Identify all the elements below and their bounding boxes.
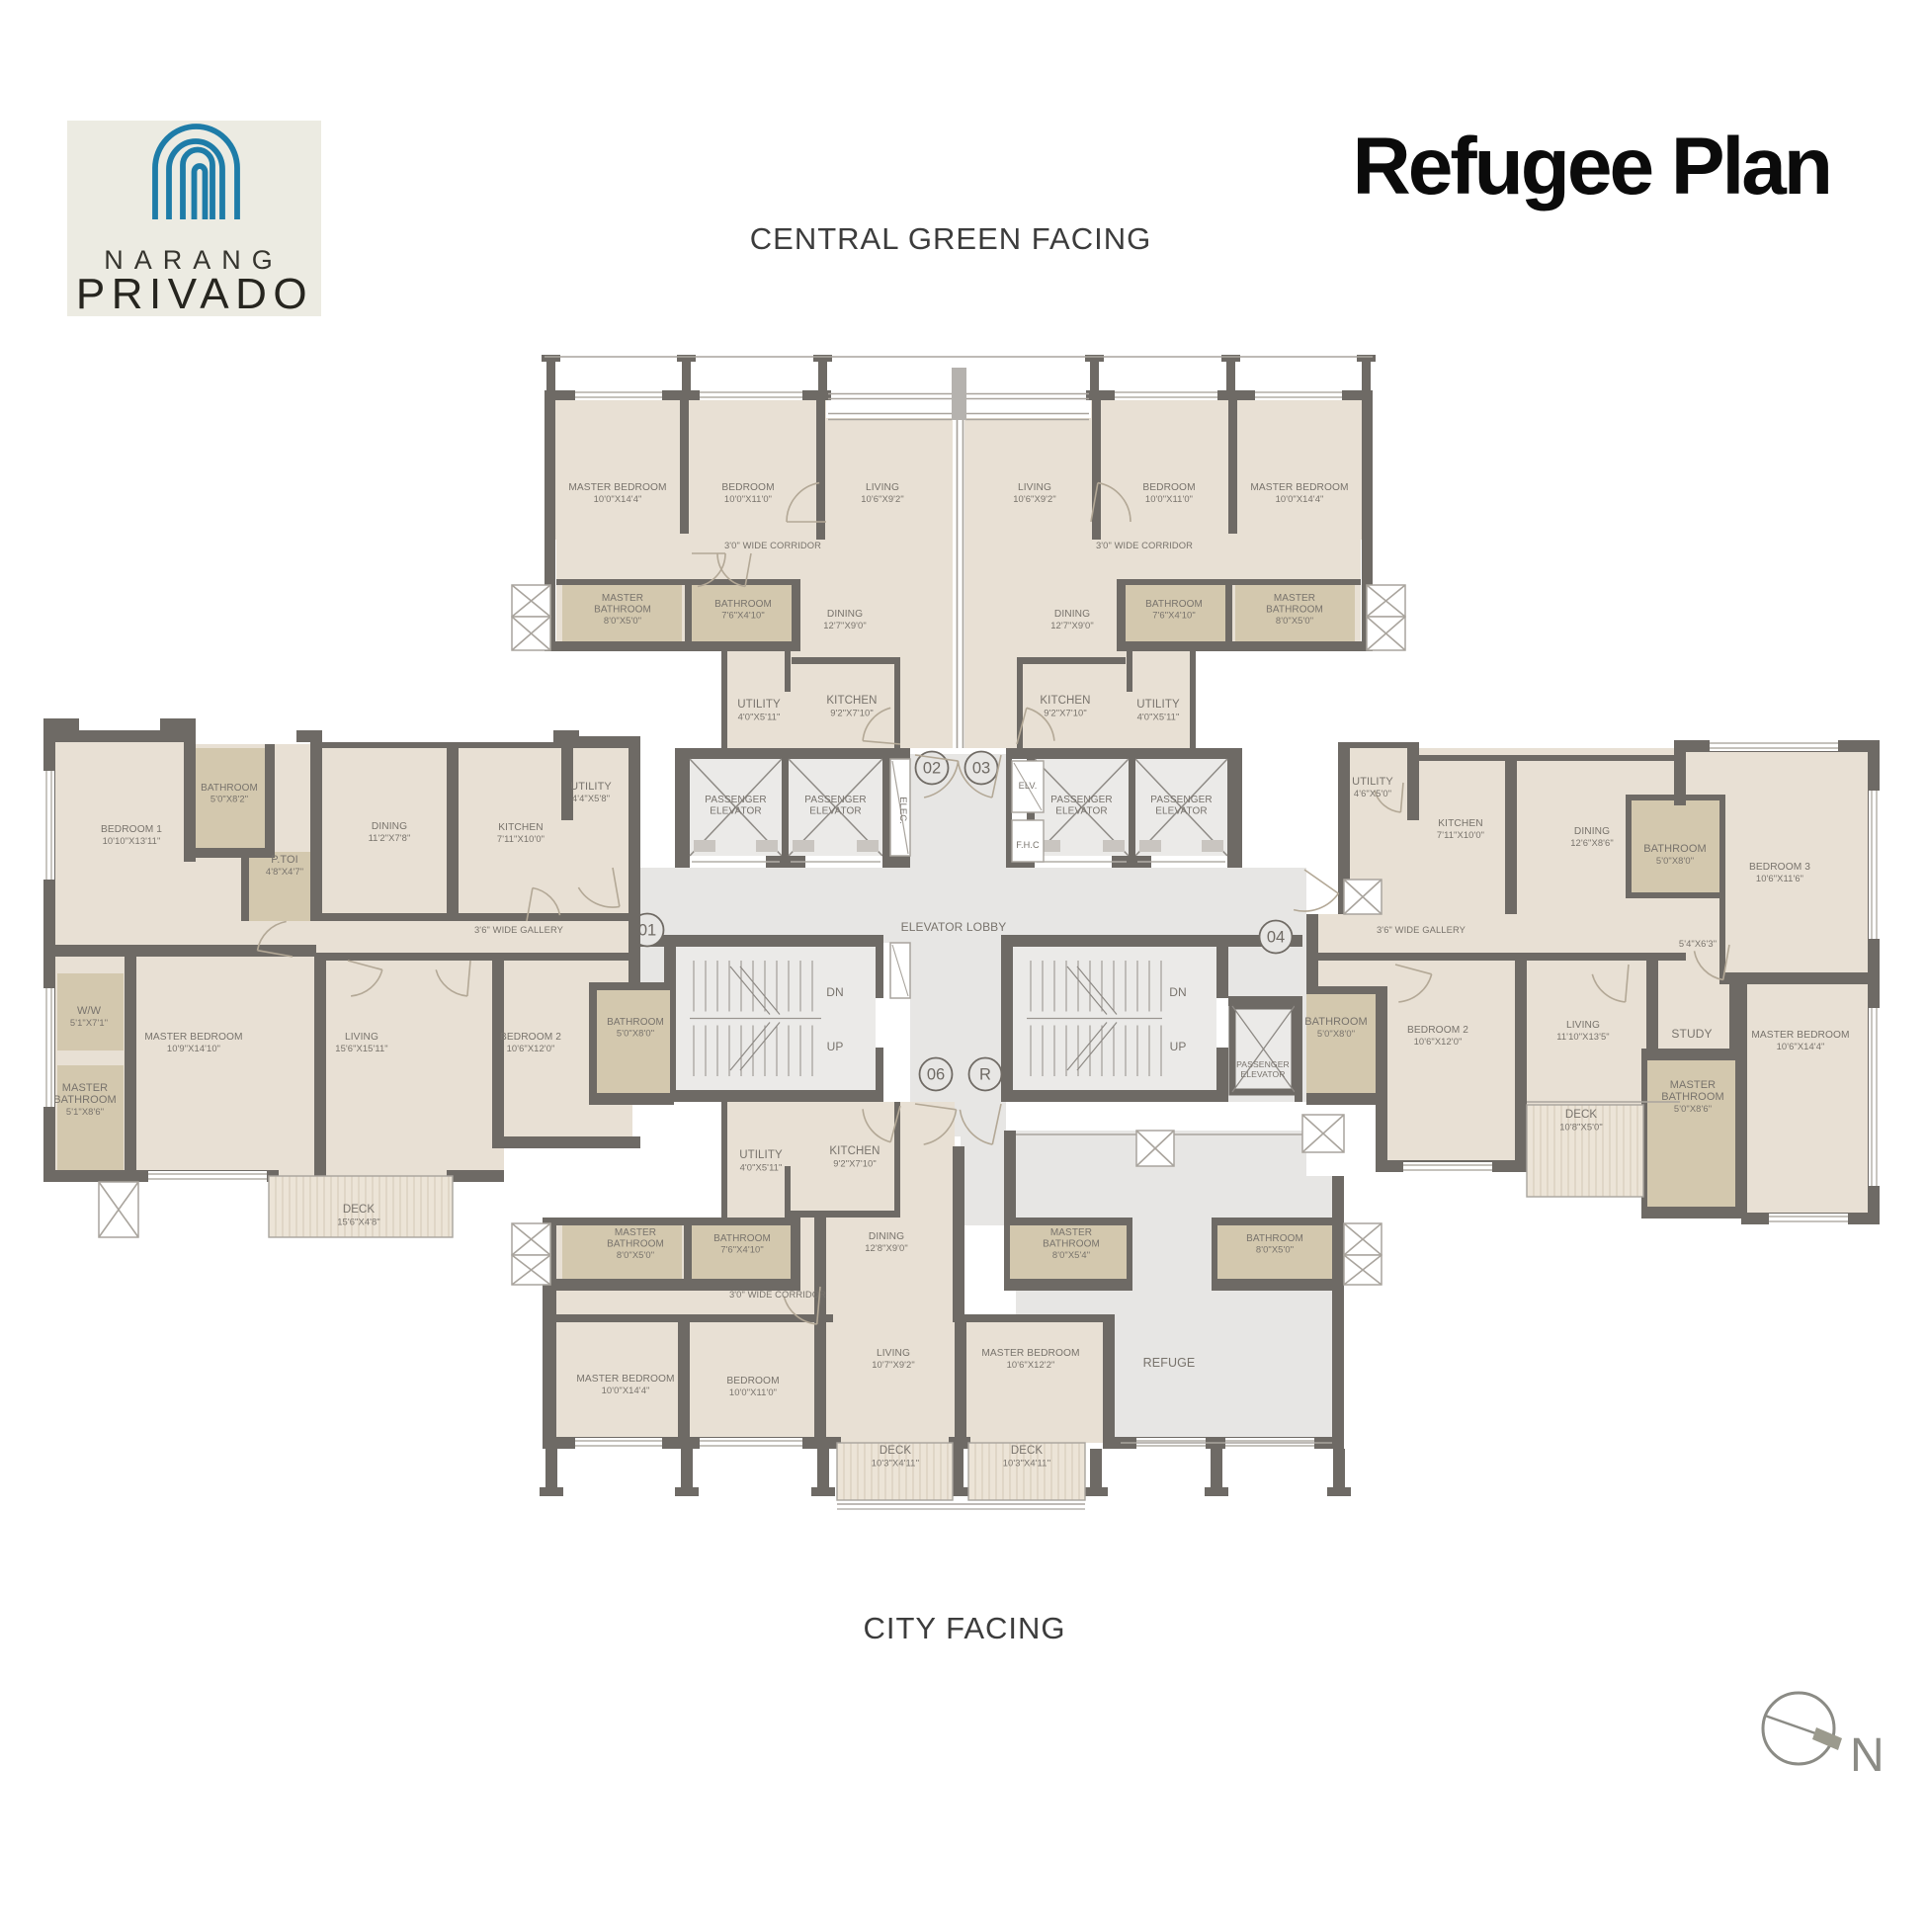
svg-text:10'3"X4'11'': 10'3"X4'11'' (1003, 1458, 1051, 1469)
svg-text:DECK: DECK (880, 1445, 912, 1457)
svg-text:MASTER BEDROOM: MASTER BEDROOM (1250, 482, 1348, 493)
svg-text:DECK: DECK (1565, 1109, 1598, 1121)
svg-text:10'0"X11'0": 10'0"X11'0" (729, 1386, 777, 1397)
svg-text:LIVING: LIVING (866, 482, 899, 493)
svg-text:4'0"X5'11": 4'0"X5'11" (738, 712, 781, 722)
svg-text:REFUGE: REFUGE (1143, 1356, 1196, 1370)
svg-text:7'6"X4'10": 7'6"X4'10" (1152, 610, 1196, 621)
svg-text:PASSENGER: PASSENGER (1050, 795, 1112, 805)
svg-text:BEDROOM 2: BEDROOM 2 (1407, 1025, 1468, 1036)
svg-text:MASTER BEDROOM: MASTER BEDROOM (576, 1374, 674, 1385)
svg-text:DINING: DINING (372, 821, 407, 832)
svg-text:BATHROOM: BATHROOM (1643, 843, 1707, 855)
svg-text:12'6"X8'6": 12'6"X8'6" (1570, 837, 1614, 848)
svg-text:10'6"X11'6": 10'6"X11'6" (1756, 873, 1803, 883)
svg-text:KITCHEN: KITCHEN (498, 822, 543, 833)
svg-text:BEDROOM 2: BEDROOM 2 (500, 1032, 561, 1043)
svg-text:10'9"X14'10": 10'9"X14'10" (167, 1043, 220, 1053)
svg-text:STUDY: STUDY (1671, 1027, 1712, 1041)
svg-text:BATHROOM: BATHROOM (714, 599, 772, 610)
svg-text:DN: DN (1169, 985, 1187, 999)
svg-text:10'6"X12'0": 10'6"X12'0" (507, 1043, 555, 1053)
svg-text:4'0"X5'11": 4'0"X5'11" (740, 1162, 783, 1173)
svg-text:7'6"X4'10": 7'6"X4'10" (720, 1244, 764, 1255)
svg-text:MASTER BEDROOM: MASTER BEDROOM (144, 1032, 242, 1043)
svg-text:3'0" WIDE CORRIDOR: 3'0" WIDE CORRIDOR (1096, 540, 1193, 550)
svg-text:BEDROOM: BEDROOM (1142, 482, 1195, 493)
svg-text:BATHROOM: BATHROOM (594, 605, 651, 616)
svg-text:10'0"X14'4": 10'0"X14'4" (1276, 493, 1324, 504)
svg-text:DINING: DINING (827, 609, 863, 620)
svg-text:9'2"X7'10": 9'2"X7'10" (830, 708, 874, 718)
svg-text:UTILITY: UTILITY (570, 781, 612, 793)
svg-text:ELEVATOR: ELEVATOR (1240, 1069, 1285, 1079)
svg-text:4'8"X4'7": 4'8"X4'7" (266, 866, 303, 877)
svg-text:15'6"X4'8": 15'6"X4'8" (337, 1217, 380, 1227)
svg-text:CENTRAL GREEN FACING: CENTRAL GREEN FACING (750, 221, 1151, 256)
svg-text:10'0"X14'4": 10'0"X14'4" (602, 1385, 650, 1395)
svg-text:DECK: DECK (1011, 1445, 1044, 1457)
svg-text:LIVING: LIVING (877, 1348, 910, 1359)
svg-text:7'11"X10'0": 7'11"X10'0" (497, 833, 545, 844)
svg-text:12'7"X9'0": 12'7"X9'0" (1050, 620, 1094, 630)
svg-text:PASSENGER: PASSENGER (1236, 1059, 1290, 1069)
svg-text:ELEVATOR: ELEVATOR (1055, 806, 1108, 817)
svg-text:8'0"X5'0": 8'0"X5'0" (617, 1249, 654, 1260)
svg-text:3'0" WIDE CORRIDOR: 3'0" WIDE CORRIDOR (729, 1289, 826, 1300)
svg-text:ELEVATOR: ELEVATOR (1155, 806, 1208, 817)
svg-text:3'0" WIDE CORRIDOR: 3'0" WIDE CORRIDOR (724, 540, 821, 550)
svg-text:BATHROOM: BATHROOM (607, 1239, 664, 1250)
svg-text:BATHROOM: BATHROOM (607, 1017, 664, 1028)
svg-text:03: 03 (972, 760, 990, 778)
svg-text:10'3"X4'11'': 10'3"X4'11'' (872, 1458, 920, 1469)
svg-text:10'7"X9'2": 10'7"X9'2" (872, 1359, 915, 1370)
svg-text:BEDROOM: BEDROOM (721, 482, 774, 493)
svg-text:5'4"X6'3": 5'4"X6'3" (1679, 938, 1717, 949)
svg-text:8'0"X5'0": 8'0"X5'0" (604, 615, 641, 626)
svg-text:MASTER: MASTER (1670, 1079, 1716, 1091)
svg-text:5'0"X8'2": 5'0"X8'2" (210, 794, 248, 804)
svg-text:KITCHEN: KITCHEN (829, 1145, 880, 1157)
svg-text:BATHROOM: BATHROOM (713, 1233, 771, 1244)
svg-text:PASSENGER: PASSENGER (804, 795, 866, 805)
svg-text:10'6"X12'0": 10'6"X12'0" (1414, 1036, 1463, 1047)
svg-text:MASTER: MASTER (602, 593, 643, 604)
svg-text:PRIVADO: PRIVADO (76, 270, 313, 318)
svg-text:MASTER BEDROOM: MASTER BEDROOM (1751, 1030, 1849, 1041)
svg-text:3'6" WIDE GALLERY: 3'6" WIDE GALLERY (1377, 924, 1466, 935)
svg-text:10'6"X12'2": 10'6"X12'2" (1007, 1359, 1055, 1370)
svg-text:5'0"X8'0": 5'0"X8'0" (1656, 855, 1694, 866)
svg-text:DN: DN (826, 985, 844, 999)
svg-text:PASSENGER: PASSENGER (705, 795, 766, 805)
svg-text:UTILITY: UTILITY (739, 1149, 783, 1161)
svg-text:BEDROOM: BEDROOM (726, 1376, 779, 1386)
svg-text:ELV.: ELV. (1019, 781, 1038, 791)
svg-text:R: R (979, 1066, 991, 1084)
svg-text:5'1"X8'6": 5'1"X8'6" (66, 1106, 104, 1117)
svg-text:BATHROOM: BATHROOM (1145, 599, 1203, 610)
svg-text:DINING: DINING (1054, 609, 1090, 620)
svg-text:10'0"X11'0": 10'0"X11'0" (724, 493, 772, 504)
svg-text:DINING: DINING (1574, 826, 1610, 837)
svg-text:MASTER BEDROOM: MASTER BEDROOM (981, 1348, 1079, 1359)
svg-text:8'0"X5'0": 8'0"X5'0" (1276, 615, 1313, 626)
svg-text:P.TOI: P.TOI (271, 854, 298, 866)
svg-text:BATHROOM: BATHROOM (1043, 1239, 1100, 1250)
svg-text:10'0"X11'0": 10'0"X11'0" (1145, 493, 1193, 504)
svg-text:CITY FACING: CITY FACING (863, 1611, 1065, 1645)
svg-text:4'0"X5'11": 4'0"X5'11" (1137, 712, 1180, 722)
svg-text:UP: UP (827, 1040, 844, 1053)
svg-text:11'2"X7'8": 11'2"X7'8" (369, 832, 411, 843)
svg-text:01: 01 (638, 922, 656, 940)
svg-text:5'0"X8'0": 5'0"X8'0" (617, 1028, 654, 1039)
svg-text:04: 04 (1267, 929, 1285, 947)
svg-text:10'8"X5'0": 10'8"X5'0" (1559, 1122, 1603, 1133)
svg-text:7'11"X10'0": 7'11"X10'0" (1437, 829, 1484, 840)
svg-text:BATHROOM: BATHROOM (1661, 1091, 1724, 1103)
svg-text:UTILITY: UTILITY (1352, 776, 1393, 788)
svg-text:10'6"X14'4": 10'6"X14'4" (1777, 1041, 1825, 1051)
svg-text:10'10"X13'11": 10'10"X13'11" (103, 835, 161, 846)
svg-text:MASTER: MASTER (62, 1082, 108, 1094)
svg-text:DECK: DECK (343, 1204, 376, 1216)
svg-text:4'6"X5'0": 4'6"X5'0" (1354, 788, 1391, 798)
svg-text:MASTER: MASTER (1050, 1227, 1092, 1238)
svg-text:7'6"X4'10": 7'6"X4'10" (721, 610, 765, 621)
svg-text:W/W: W/W (77, 1005, 102, 1017)
svg-text:LIVING: LIVING (1566, 1020, 1600, 1031)
svg-text:MASTER BEDROOM: MASTER BEDROOM (568, 482, 666, 493)
svg-text:10'6"X9'2": 10'6"X9'2" (861, 493, 904, 504)
svg-text:Refugee Plan: Refugee Plan (1353, 122, 1830, 211)
svg-text:UTILITY: UTILITY (737, 699, 781, 711)
svg-text:9'2"X7'10": 9'2"X7'10" (833, 1158, 877, 1169)
svg-text:5'0"X8'6": 5'0"X8'6" (1674, 1103, 1712, 1114)
svg-text:LIVING: LIVING (345, 1032, 378, 1043)
svg-text:UP: UP (1170, 1040, 1187, 1053)
svg-text:3'6" WIDE GALLERY: 3'6" WIDE GALLERY (474, 924, 564, 935)
svg-text:12'8"X9'0": 12'8"X9'0" (865, 1242, 908, 1253)
svg-text:4'4"X5'8": 4'4"X5'8" (572, 793, 610, 803)
svg-text:10'6"X9'2": 10'6"X9'2" (1013, 493, 1056, 504)
svg-text:10'0"X14'4": 10'0"X14'4" (594, 493, 642, 504)
svg-text:ELEVATOR: ELEVATOR (809, 806, 862, 817)
svg-text:UTILITY: UTILITY (1136, 699, 1180, 711)
svg-text:8'0"X5'4": 8'0"X5'4" (1052, 1249, 1090, 1260)
svg-text:15'6"X15'11": 15'6"X15'11" (335, 1043, 388, 1053)
svg-text:ELEVATOR LOBBY: ELEVATOR LOBBY (901, 920, 1007, 934)
svg-text:11'10"X13'5": 11'10"X13'5" (1556, 1031, 1610, 1042)
svg-text:MASTER: MASTER (1274, 593, 1315, 604)
svg-text:N: N (1850, 1729, 1885, 1782)
svg-text:F.H.C: F.H.C (1016, 840, 1040, 850)
svg-text:PASSENGER: PASSENGER (1150, 795, 1212, 805)
svg-text:KITCHEN: KITCHEN (826, 695, 877, 707)
svg-text:8'0"X5'0": 8'0"X5'0" (1256, 1244, 1294, 1255)
svg-text:5'0"X8'0": 5'0"X8'0" (1317, 1028, 1355, 1039)
svg-text:BATHROOM: BATHROOM (201, 783, 258, 794)
svg-text:LIVING: LIVING (1018, 482, 1051, 493)
svg-text:BATHROOM: BATHROOM (1304, 1016, 1368, 1028)
svg-text:BEDROOM 1: BEDROOM 1 (101, 824, 162, 835)
svg-text:BATHROOM: BATHROOM (1246, 1233, 1303, 1244)
svg-text:BATHROOM: BATHROOM (53, 1094, 117, 1106)
svg-text:9'2"X7'10": 9'2"X7'10" (1044, 708, 1087, 718)
svg-text:ELEC.: ELEC. (897, 797, 908, 823)
svg-text:06: 06 (927, 1066, 945, 1084)
svg-text:BEDROOM 3: BEDROOM 3 (1749, 862, 1810, 873)
svg-text:DINING: DINING (869, 1231, 904, 1242)
svg-text:KITCHEN: KITCHEN (1438, 818, 1482, 829)
svg-text:KITCHEN: KITCHEN (1040, 695, 1090, 707)
svg-text:5'1"X7'1": 5'1"X7'1" (70, 1017, 108, 1028)
svg-text:BATHROOM: BATHROOM (1266, 605, 1323, 616)
svg-text:02: 02 (923, 760, 941, 778)
svg-text:12'7"X9'0": 12'7"X9'0" (823, 620, 867, 630)
svg-text:MASTER: MASTER (615, 1227, 656, 1238)
svg-text:ELEVATOR: ELEVATOR (710, 806, 762, 817)
